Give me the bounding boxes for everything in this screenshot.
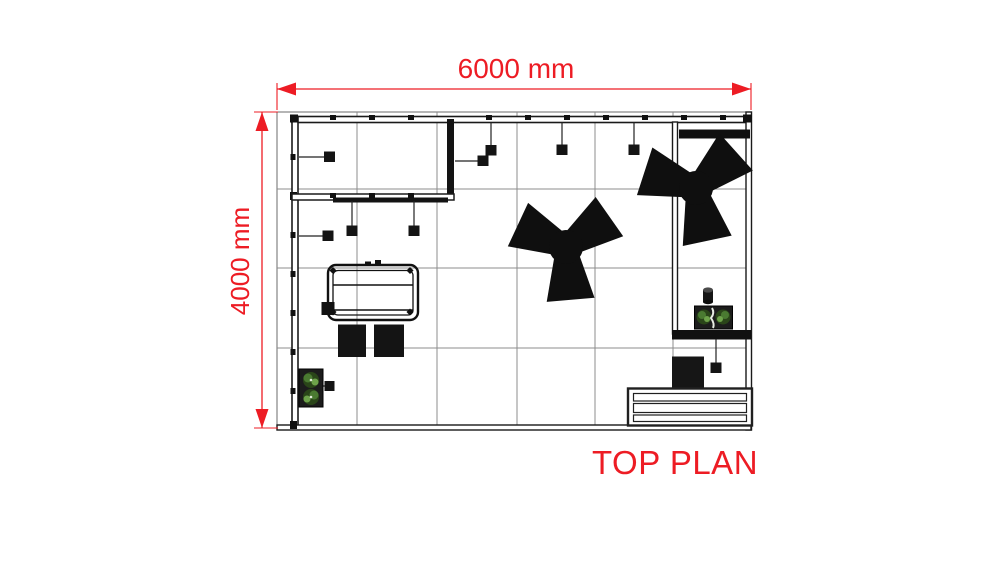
light-icon — [629, 122, 640, 155]
stool — [374, 325, 404, 358]
alcove-base-bar — [672, 330, 751, 340]
light-icon — [557, 122, 568, 155]
width-dimension — [277, 83, 751, 111]
storage-room — [292, 119, 454, 203]
plant-icon — [697, 310, 712, 325]
y-lounge-structure — [504, 195, 628, 305]
plant-icon — [716, 310, 731, 325]
light-icon — [299, 231, 334, 242]
plant-icon — [303, 372, 319, 388]
plant-icon — [303, 389, 319, 405]
height-dimension-label: 4000 mm — [226, 199, 258, 323]
reception-counter — [628, 389, 752, 426]
vase-cylinder — [703, 287, 713, 304]
light-icon — [711, 339, 722, 373]
light-icon — [486, 122, 497, 156]
planter-right — [695, 306, 733, 329]
top-plan-drawing: 6000 mm 4000 mm TOP PLAN — [0, 0, 1000, 563]
cube-seat — [672, 357, 704, 389]
plan-title: TOP PLAN — [592, 444, 768, 484]
table-side-seat — [322, 302, 335, 315]
meeting-table — [322, 260, 419, 320]
planter-left — [299, 369, 323, 407]
light-icon — [409, 201, 420, 236]
floor-plan-svg — [0, 0, 1000, 563]
light-icon — [455, 156, 489, 167]
stool — [338, 325, 366, 358]
y-lounge-structure — [628, 128, 765, 253]
light-icon — [299, 152, 335, 163]
alcove-header-bar — [679, 130, 750, 139]
light-icon — [347, 201, 358, 236]
width-dimension-label: 6000 mm — [452, 54, 580, 84]
